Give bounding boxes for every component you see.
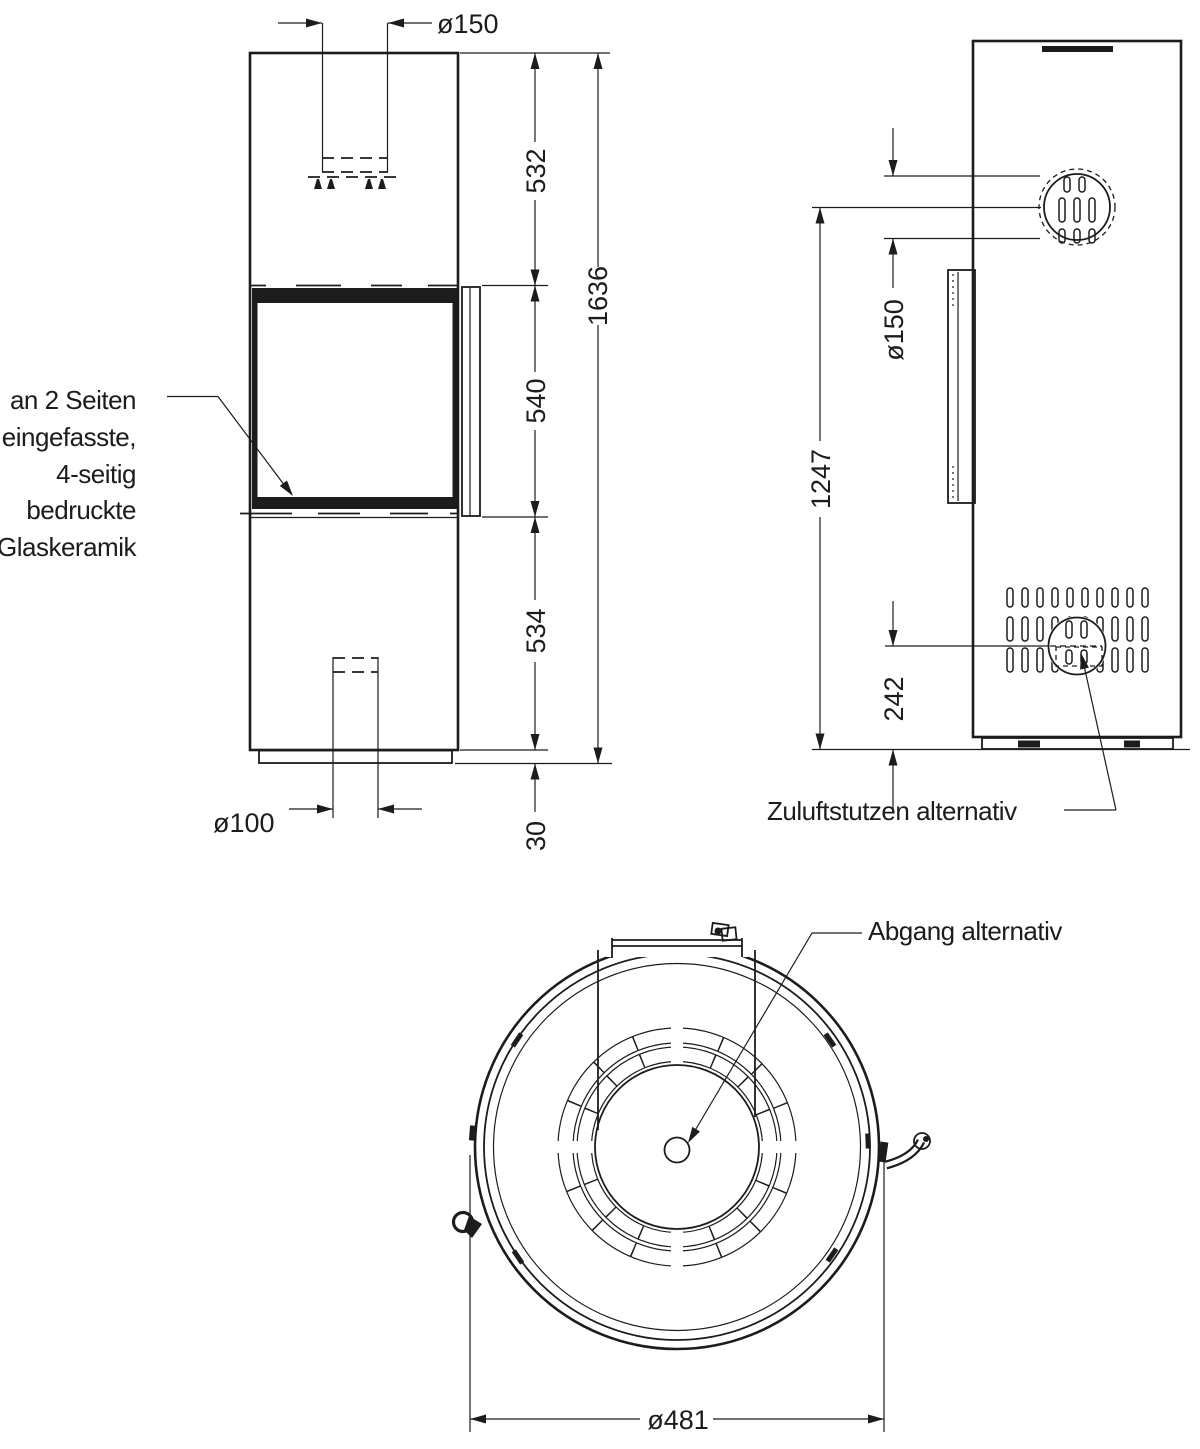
glass-note-line-1: an 2 Seiten xyxy=(10,385,136,415)
dim-flue-rear: ø150 xyxy=(879,299,909,361)
front-plinth xyxy=(259,751,452,764)
door-handle xyxy=(878,1133,930,1165)
front-glass-window xyxy=(240,283,480,518)
front-flue-pipe xyxy=(308,23,402,189)
dim-outer-diameter: ø481 xyxy=(647,1405,709,1435)
firebox-inner-wall xyxy=(595,1065,759,1229)
leader-arrowhead xyxy=(280,481,293,497)
top-view-dimensions: ø481 xyxy=(470,1155,884,1435)
dim-air-inlet-bottom: ø100 xyxy=(213,808,275,838)
dim-total-height: 1636 xyxy=(583,266,613,326)
dim-upper-height: 532 xyxy=(521,148,551,193)
front-air-pipe xyxy=(333,657,378,818)
glass-note-line-5: Glaskeramik xyxy=(0,532,137,562)
side-glass-panel xyxy=(948,270,975,503)
front-body-outline xyxy=(250,53,458,750)
glass-bottom-band xyxy=(252,497,458,509)
glass-right-frame xyxy=(453,303,459,497)
dim-plinth-height: 30 xyxy=(521,821,551,851)
glass-note-line-3: 4-seitig xyxy=(56,459,136,489)
side-top-bar xyxy=(1042,46,1113,52)
glass-note-line-2: eingefasste, xyxy=(2,422,136,452)
stove-dimensional-drawing: ø150 ø100 532 540 534 30 1636 an 2 Seite… xyxy=(0,0,1200,1449)
side-air-inlet-circle xyxy=(1047,616,1107,676)
side-view-dimensions: ø150 1247 242 xyxy=(806,128,1048,812)
dim-flue-top: ø150 xyxy=(437,9,499,39)
front-view xyxy=(167,23,480,818)
glass-left-frame xyxy=(252,303,258,497)
air-inlet-label: Zuluftstutzen alternativ xyxy=(767,796,1017,826)
flue-outlet-label: Abgang alternativ xyxy=(868,916,1062,946)
glass-note: an 2 Seiten eingefasste, 4-seitig bedruc… xyxy=(0,385,137,562)
rim-ticks xyxy=(469,1032,871,1264)
top-flue-outlet xyxy=(665,1138,690,1163)
glass-top-band xyxy=(252,288,458,303)
side-plinth xyxy=(982,738,1173,749)
side-eyelet xyxy=(454,1213,483,1239)
firebrick-rings xyxy=(552,1022,802,1272)
leader-arrowhead xyxy=(688,1127,700,1143)
technical-drawing-page: ø150 ø100 532 540 534 30 1636 an 2 Seite… xyxy=(0,0,1200,1449)
top-outer-shell xyxy=(475,945,879,1349)
dim-flue-center-height: 1247 xyxy=(806,449,836,509)
glass-note-line-4: bedruckte xyxy=(26,495,136,525)
glass-note-leader xyxy=(167,397,293,497)
front-view-dimensions: ø150 ø100 532 540 534 30 1636 xyxy=(213,9,613,851)
side-view xyxy=(812,41,1190,750)
dim-lower-height: 534 xyxy=(521,608,551,653)
dim-air-center-height: 242 xyxy=(879,676,909,721)
dim-glass-height: 540 xyxy=(521,378,551,423)
front-side-glass-panel xyxy=(462,287,480,516)
side-flue-stub xyxy=(1039,169,1115,245)
